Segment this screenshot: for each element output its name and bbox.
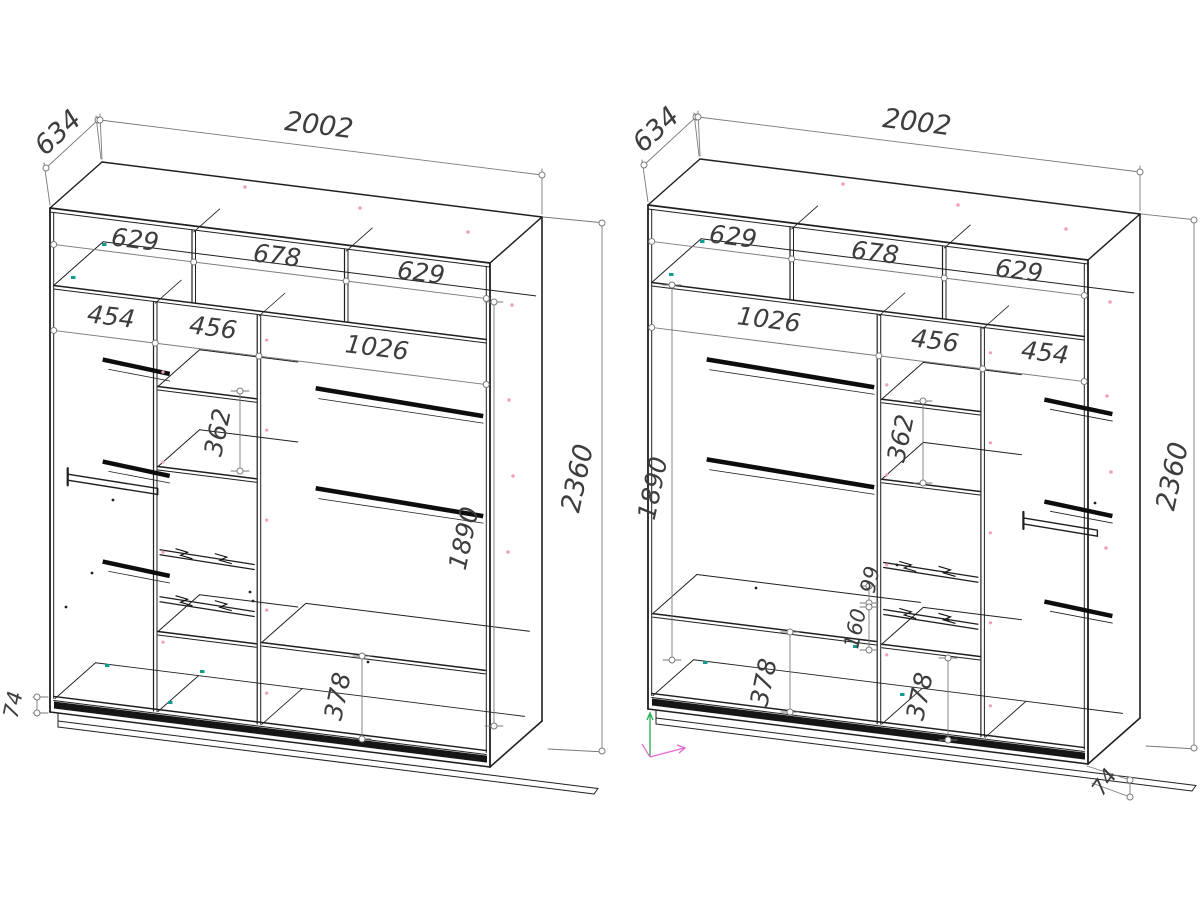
- wardrobe-blueprint: 634 2002 2360 629 678 629 454 456 1026 3…: [0, 0, 1200, 900]
- dim-column-1-right: 1026: [736, 301, 803, 338]
- dim-shelf-spacing-left: 362: [199, 406, 237, 459]
- dim-column-2-right: 456: [910, 323, 961, 358]
- dim-column-3-left: 1026: [344, 329, 411, 366]
- dim-hanging-height-right: 1890: [632, 454, 674, 522]
- dim-bottom-section-1-right: 378: [745, 656, 783, 709]
- dim-top-section-1-left: 629: [110, 222, 161, 257]
- dim-bottom-section-2-right: 378: [901, 670, 939, 723]
- dim-top-section-2-left: 678: [252, 238, 303, 273]
- dim-plinth-left: 74: [0, 689, 28, 720]
- dim-column-1-left: 454: [86, 299, 137, 334]
- dim-width-left: 2002: [283, 106, 355, 145]
- technical-drawing-canvas: 634 2002 2360 629 678 629 454 456 1026 3…: [0, 0, 1200, 900]
- dim-bottom-section-left: 378: [319, 670, 357, 723]
- dim-column-2-left: 456: [188, 310, 239, 345]
- dim-width-right: 2002: [881, 103, 953, 142]
- dim-height-right: 2360: [1150, 439, 1195, 513]
- dimension-labels: 634 2002 2360 629 678 629 454 456 1026 3…: [0, 101, 1195, 800]
- dim-top-section-3-right: 629: [994, 253, 1045, 288]
- dim-column-3-right: 454: [1020, 335, 1071, 370]
- dim-shelf-spacing-right: 362: [882, 412, 920, 465]
- dim-plinth-right: 74: [1087, 764, 1122, 800]
- dim-depth-left: 634: [29, 104, 88, 162]
- dim-top-section-3-left: 629: [396, 255, 447, 290]
- dim-hanging-height-left: 1890: [443, 504, 485, 572]
- dim-top-section-2-right: 678: [850, 235, 901, 270]
- dim-depth-right: 634: [627, 101, 686, 159]
- dim-top-section-1-right: 629: [708, 219, 759, 254]
- dim-height-left: 2360: [555, 441, 600, 515]
- wardrobe-left-linework: [33, 114, 605, 794]
